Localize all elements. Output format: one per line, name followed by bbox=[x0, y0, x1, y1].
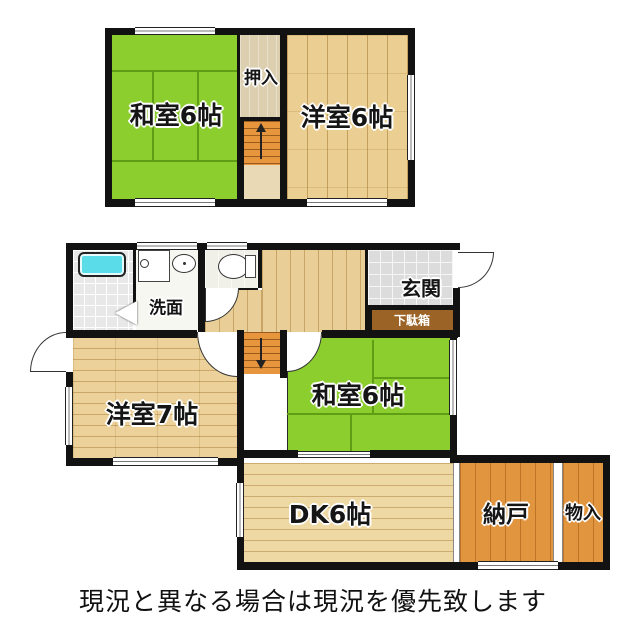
room-label-washitsu-1f: 和室6帖 bbox=[312, 376, 404, 412]
side-door-arc bbox=[30, 332, 66, 372]
room-label-getabako: 下駄箱 bbox=[394, 312, 430, 329]
wall bbox=[215, 199, 307, 207]
wall bbox=[237, 35, 240, 117]
wall bbox=[408, 28, 415, 75]
window bbox=[307, 198, 387, 207]
wall bbox=[370, 450, 450, 458]
window bbox=[478, 561, 558, 570]
wall bbox=[239, 288, 258, 290]
stairs-down-arrow-icon bbox=[260, 338, 262, 362]
wall bbox=[237, 450, 298, 458]
stairs-up-arrow-icon bbox=[260, 131, 262, 159]
wall bbox=[280, 330, 287, 338]
sliding-door bbox=[553, 463, 563, 562]
wall bbox=[603, 455, 610, 570]
wall bbox=[215, 28, 415, 35]
wall bbox=[198, 250, 205, 337]
window bbox=[207, 242, 247, 250]
room-label-nando: 納戸 bbox=[483, 495, 529, 529]
window bbox=[135, 27, 215, 35]
window bbox=[236, 483, 244, 537]
wall bbox=[280, 338, 287, 378]
stairwell bbox=[244, 374, 285, 450]
front-door-arc bbox=[458, 252, 494, 288]
wall bbox=[237, 338, 244, 458]
wall bbox=[408, 160, 415, 207]
wall bbox=[258, 243, 262, 288]
room-label-youshitsu-1f: 洋室7帖 bbox=[106, 395, 198, 431]
wall bbox=[247, 243, 460, 250]
tatami-line bbox=[287, 413, 450, 415]
wall bbox=[453, 243, 460, 250]
sink-faucet-icon bbox=[183, 262, 186, 265]
wall bbox=[322, 330, 458, 338]
sliding-door bbox=[453, 463, 460, 562]
bathtub bbox=[78, 252, 126, 277]
sliding-door bbox=[298, 451, 370, 458]
wall bbox=[105, 28, 112, 207]
wall bbox=[460, 562, 478, 570]
hallway bbox=[262, 250, 365, 337]
room-label-oshiire: 押入 bbox=[244, 64, 278, 89]
wall bbox=[365, 250, 368, 310]
window bbox=[135, 198, 215, 207]
wall bbox=[237, 458, 244, 483]
stair-landing-2f bbox=[244, 165, 280, 199]
wall bbox=[237, 562, 460, 570]
wall bbox=[237, 330, 244, 338]
window bbox=[113, 457, 218, 466]
room-label-dk: DK6帖 bbox=[289, 495, 372, 531]
room-label-youshitsu-2f: 洋室6帖 bbox=[301, 98, 393, 134]
window bbox=[65, 387, 73, 445]
wall bbox=[66, 243, 137, 250]
wall bbox=[237, 117, 282, 121]
bathroom-door bbox=[115, 301, 137, 325]
window bbox=[407, 75, 415, 160]
room-label-monoire: 物入 bbox=[565, 499, 601, 525]
floor-plan: 和室6帖 押入 洋室6帖 bbox=[0, 0, 632, 640]
wall bbox=[450, 455, 610, 463]
room-label-washitsu-2f: 和室6帖 bbox=[130, 96, 222, 132]
wall bbox=[197, 243, 207, 250]
stairs-down-arrowhead-icon bbox=[256, 360, 266, 369]
window bbox=[137, 242, 197, 250]
wall bbox=[66, 458, 113, 466]
wall bbox=[66, 330, 197, 338]
tatami-line bbox=[112, 70, 237, 72]
wall bbox=[66, 372, 73, 387]
window bbox=[449, 340, 457, 415]
room-label-genkan: 玄関 bbox=[401, 273, 441, 302]
disclaimer-note: 現況と異なる場合は現況を優先致します bbox=[79, 582, 547, 618]
tatami-line bbox=[112, 160, 237, 162]
room-label-senmen: 洗面 bbox=[149, 294, 183, 319]
washing-machine-drain-icon bbox=[140, 259, 149, 268]
stairs-up-arrowhead-icon bbox=[256, 123, 266, 132]
wall bbox=[133, 250, 136, 305]
wall bbox=[66, 243, 73, 332]
toilet-tank bbox=[245, 255, 256, 278]
wall bbox=[450, 415, 457, 457]
wall bbox=[237, 117, 244, 199]
